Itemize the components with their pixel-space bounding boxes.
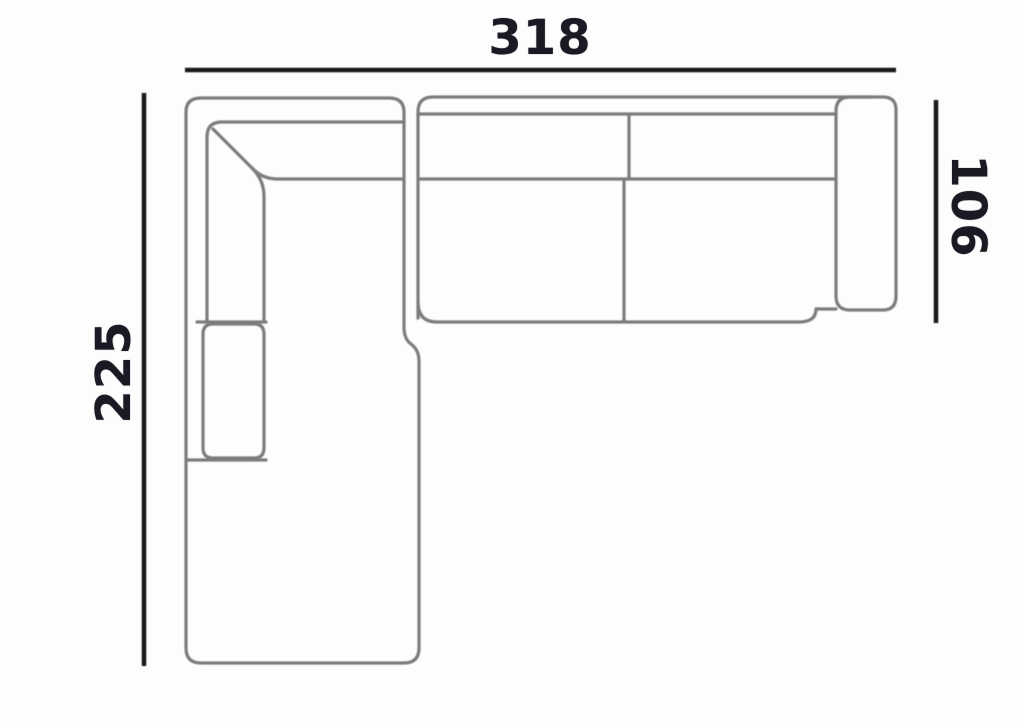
right-armrest xyxy=(836,97,896,310)
sofa-dimension-diagram: 318 225 106 xyxy=(0,0,1024,726)
corner-seat-side-seam xyxy=(252,168,264,322)
width-dimension-label: 318 xyxy=(488,10,591,66)
sofa-plan-drawing xyxy=(0,0,1024,726)
right-unit-back-outline xyxy=(418,97,872,318)
corner-seat-front-seam xyxy=(252,168,404,179)
corner-chaise-outline xyxy=(186,98,419,663)
right-sofa-unit xyxy=(418,97,896,322)
left-depth-dimension-label: 225 xyxy=(86,320,142,423)
right-depth-dimension-label: 106 xyxy=(940,154,996,257)
left-arm-cushion xyxy=(203,324,264,458)
corner-diagonal-seam xyxy=(213,129,252,168)
seat-front-edge xyxy=(418,302,836,322)
corner-chaise-unit xyxy=(186,98,419,663)
